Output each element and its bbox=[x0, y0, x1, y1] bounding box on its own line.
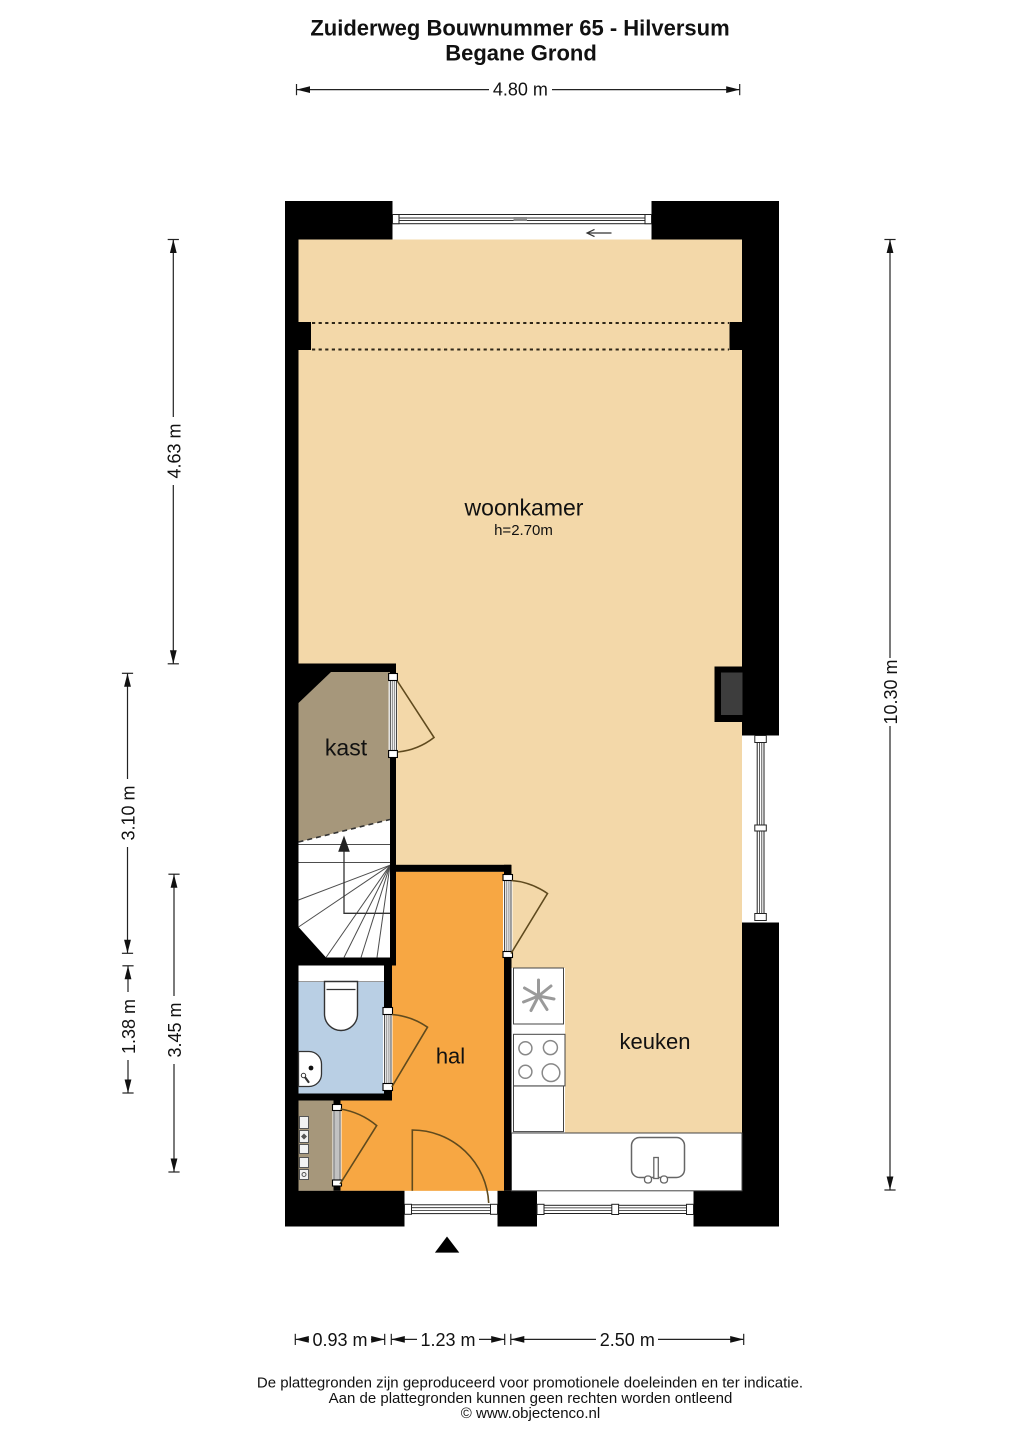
svg-text:2.50 m: 2.50 m bbox=[600, 1330, 655, 1350]
svg-text:3.45 m: 3.45 m bbox=[165, 1002, 185, 1057]
svg-text:woonkamer: woonkamer bbox=[464, 494, 584, 520]
svg-text:4.80 m: 4.80 m bbox=[493, 79, 548, 99]
svg-text:h=2.70m: h=2.70m bbox=[494, 522, 553, 539]
svg-text:1.23 m: 1.23 m bbox=[420, 1330, 475, 1350]
svg-text:3.10 m: 3.10 m bbox=[119, 785, 139, 840]
svg-text:keuken: keuken bbox=[620, 1029, 691, 1054]
svg-text:© www.objectenco.nl: © www.objectenco.nl bbox=[461, 1405, 600, 1422]
svg-text:0.93 m: 0.93 m bbox=[312, 1330, 367, 1350]
svg-text:1.38 m: 1.38 m bbox=[119, 999, 139, 1054]
svg-text:4.63 m: 4.63 m bbox=[164, 423, 184, 478]
svg-text:10.30 m: 10.30 m bbox=[881, 659, 901, 724]
svg-text:Zuiderweg Bouwnummer 65 - Hilv: Zuiderweg Bouwnummer 65 - Hilversum bbox=[310, 15, 729, 40]
svg-text:kast: kast bbox=[325, 735, 368, 761]
svg-text:Begane Grond: Begane Grond bbox=[445, 40, 597, 65]
svg-text:hal: hal bbox=[436, 1043, 465, 1068]
